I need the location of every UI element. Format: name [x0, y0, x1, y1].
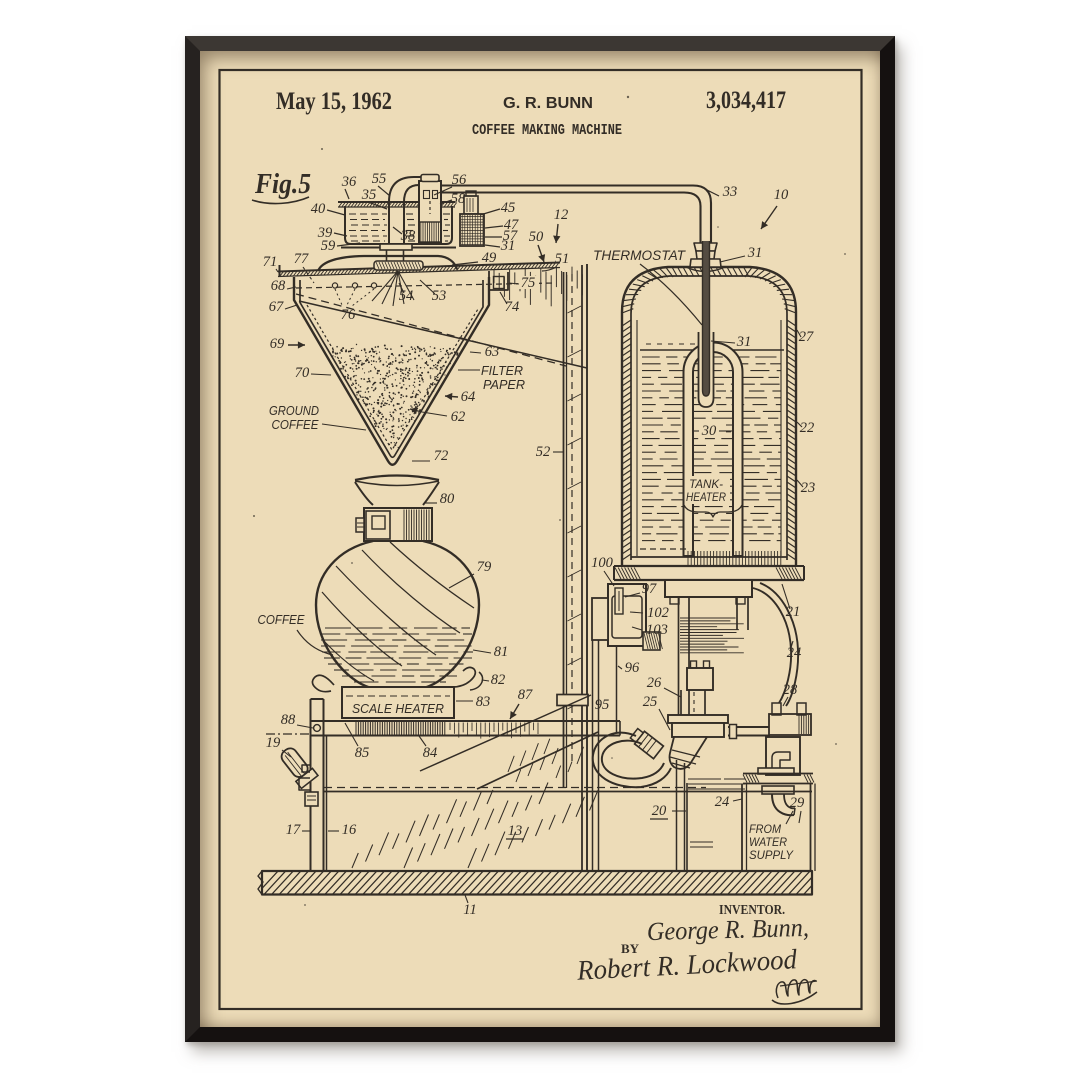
- svg-text:PAPER: PAPER: [483, 377, 525, 392]
- svg-text:55: 55: [372, 171, 387, 187]
- svg-text:77: 77: [294, 251, 309, 267]
- svg-text:74: 74: [505, 299, 520, 315]
- svg-text:13: 13: [508, 823, 523, 839]
- svg-text:56: 56: [452, 172, 467, 188]
- svg-text:51: 51: [555, 251, 570, 267]
- svg-text:88: 88: [281, 712, 296, 728]
- svg-text:52: 52: [536, 444, 551, 460]
- svg-text:10: 10: [774, 187, 789, 203]
- svg-text:71: 71: [263, 254, 278, 270]
- svg-text:64: 64: [461, 389, 476, 405]
- svg-text:62: 62: [451, 409, 466, 425]
- svg-text:GROUND: GROUND: [269, 403, 319, 418]
- svg-text:12: 12: [554, 207, 569, 223]
- svg-text:27: 27: [799, 329, 814, 345]
- svg-text:26: 26: [647, 675, 662, 691]
- svg-text:33: 33: [722, 184, 738, 200]
- svg-text:103: 103: [646, 622, 668, 638]
- svg-text:49: 49: [482, 250, 497, 266]
- svg-text:38: 38: [400, 228, 416, 244]
- svg-text:SCALE HEATER: SCALE HEATER: [352, 701, 444, 716]
- svg-text:Fig.5: Fig.5: [254, 169, 311, 200]
- svg-text:69: 69: [270, 336, 285, 352]
- svg-text:May 15, 1962: May 15, 1962: [276, 88, 392, 115]
- svg-text:HEATER: HEATER: [686, 490, 726, 504]
- svg-text:FILTER: FILTER: [481, 363, 523, 378]
- svg-text:36: 36: [341, 174, 357, 190]
- svg-text:82: 82: [491, 672, 506, 688]
- svg-text:85: 85: [355, 745, 370, 761]
- svg-text:96: 96: [625, 660, 640, 676]
- svg-text:45: 45: [501, 200, 516, 216]
- svg-text:70: 70: [295, 365, 310, 381]
- svg-text:17: 17: [286, 822, 301, 838]
- svg-text:31: 31: [736, 334, 752, 350]
- svg-text:3,034,417: 3,034,417: [706, 87, 786, 114]
- svg-text:76: 76: [341, 307, 356, 323]
- svg-text:TANK-: TANK-: [689, 477, 723, 491]
- svg-text:25: 25: [643, 694, 658, 710]
- svg-text:23: 23: [801, 480, 816, 496]
- svg-text:21: 21: [786, 604, 801, 620]
- svg-text:35: 35: [361, 187, 377, 203]
- svg-text:40: 40: [311, 201, 326, 217]
- svg-text:COFFEE: COFFEE: [272, 417, 319, 432]
- svg-text:SUPPLY: SUPPLY: [749, 848, 794, 862]
- svg-text:THERMOSTAT: THERMOSTAT: [593, 248, 687, 263]
- svg-text:95: 95: [595, 697, 610, 713]
- svg-text:28: 28: [783, 682, 798, 698]
- svg-text:87: 87: [518, 687, 533, 703]
- svg-text:54: 54: [399, 288, 414, 304]
- svg-text:11: 11: [463, 902, 476, 918]
- svg-text:16: 16: [342, 822, 357, 838]
- svg-text:97: 97: [642, 581, 657, 597]
- svg-text:31: 31: [747, 245, 763, 261]
- svg-text:19: 19: [266, 735, 281, 751]
- svg-text:100: 100: [591, 555, 614, 571]
- svg-text:George R. Bunn,: George R. Bunn,: [647, 913, 810, 946]
- svg-text:FROM: FROM: [749, 822, 781, 836]
- svg-text:20: 20: [652, 803, 667, 819]
- svg-text:G. R. BUNN: G. R. BUNN: [503, 95, 593, 112]
- svg-text:81: 81: [494, 644, 509, 660]
- svg-text:WATER: WATER: [749, 835, 787, 849]
- svg-text:29: 29: [790, 795, 805, 811]
- svg-text:31: 31: [500, 238, 516, 254]
- svg-text:68: 68: [271, 278, 286, 294]
- svg-text:83: 83: [476, 694, 491, 710]
- svg-text:72: 72: [434, 448, 449, 464]
- svg-text:22: 22: [800, 420, 815, 436]
- svg-text:58: 58: [451, 191, 466, 207]
- svg-text:COFFEE MAKING MACHINE: COFFEE MAKING MACHINE: [472, 123, 622, 139]
- svg-text:102: 102: [647, 605, 669, 621]
- svg-text:Robert R. Lockwood: Robert R. Lockwood: [575, 944, 798, 987]
- svg-text:COFFEE: COFFEE: [258, 612, 305, 627]
- svg-text:84: 84: [423, 745, 438, 761]
- svg-text:24: 24: [715, 794, 730, 810]
- svg-text:80: 80: [440, 491, 455, 507]
- svg-text:63: 63: [485, 344, 500, 360]
- svg-text:53: 53: [432, 288, 447, 304]
- svg-text:24: 24: [787, 645, 802, 661]
- svg-text:79: 79: [477, 559, 492, 575]
- svg-text:67: 67: [269, 299, 284, 315]
- svg-text:59: 59: [321, 238, 336, 254]
- svg-text:30: 30: [701, 423, 717, 439]
- svg-text:50: 50: [529, 229, 544, 245]
- svg-text:75: 75: [521, 275, 536, 291]
